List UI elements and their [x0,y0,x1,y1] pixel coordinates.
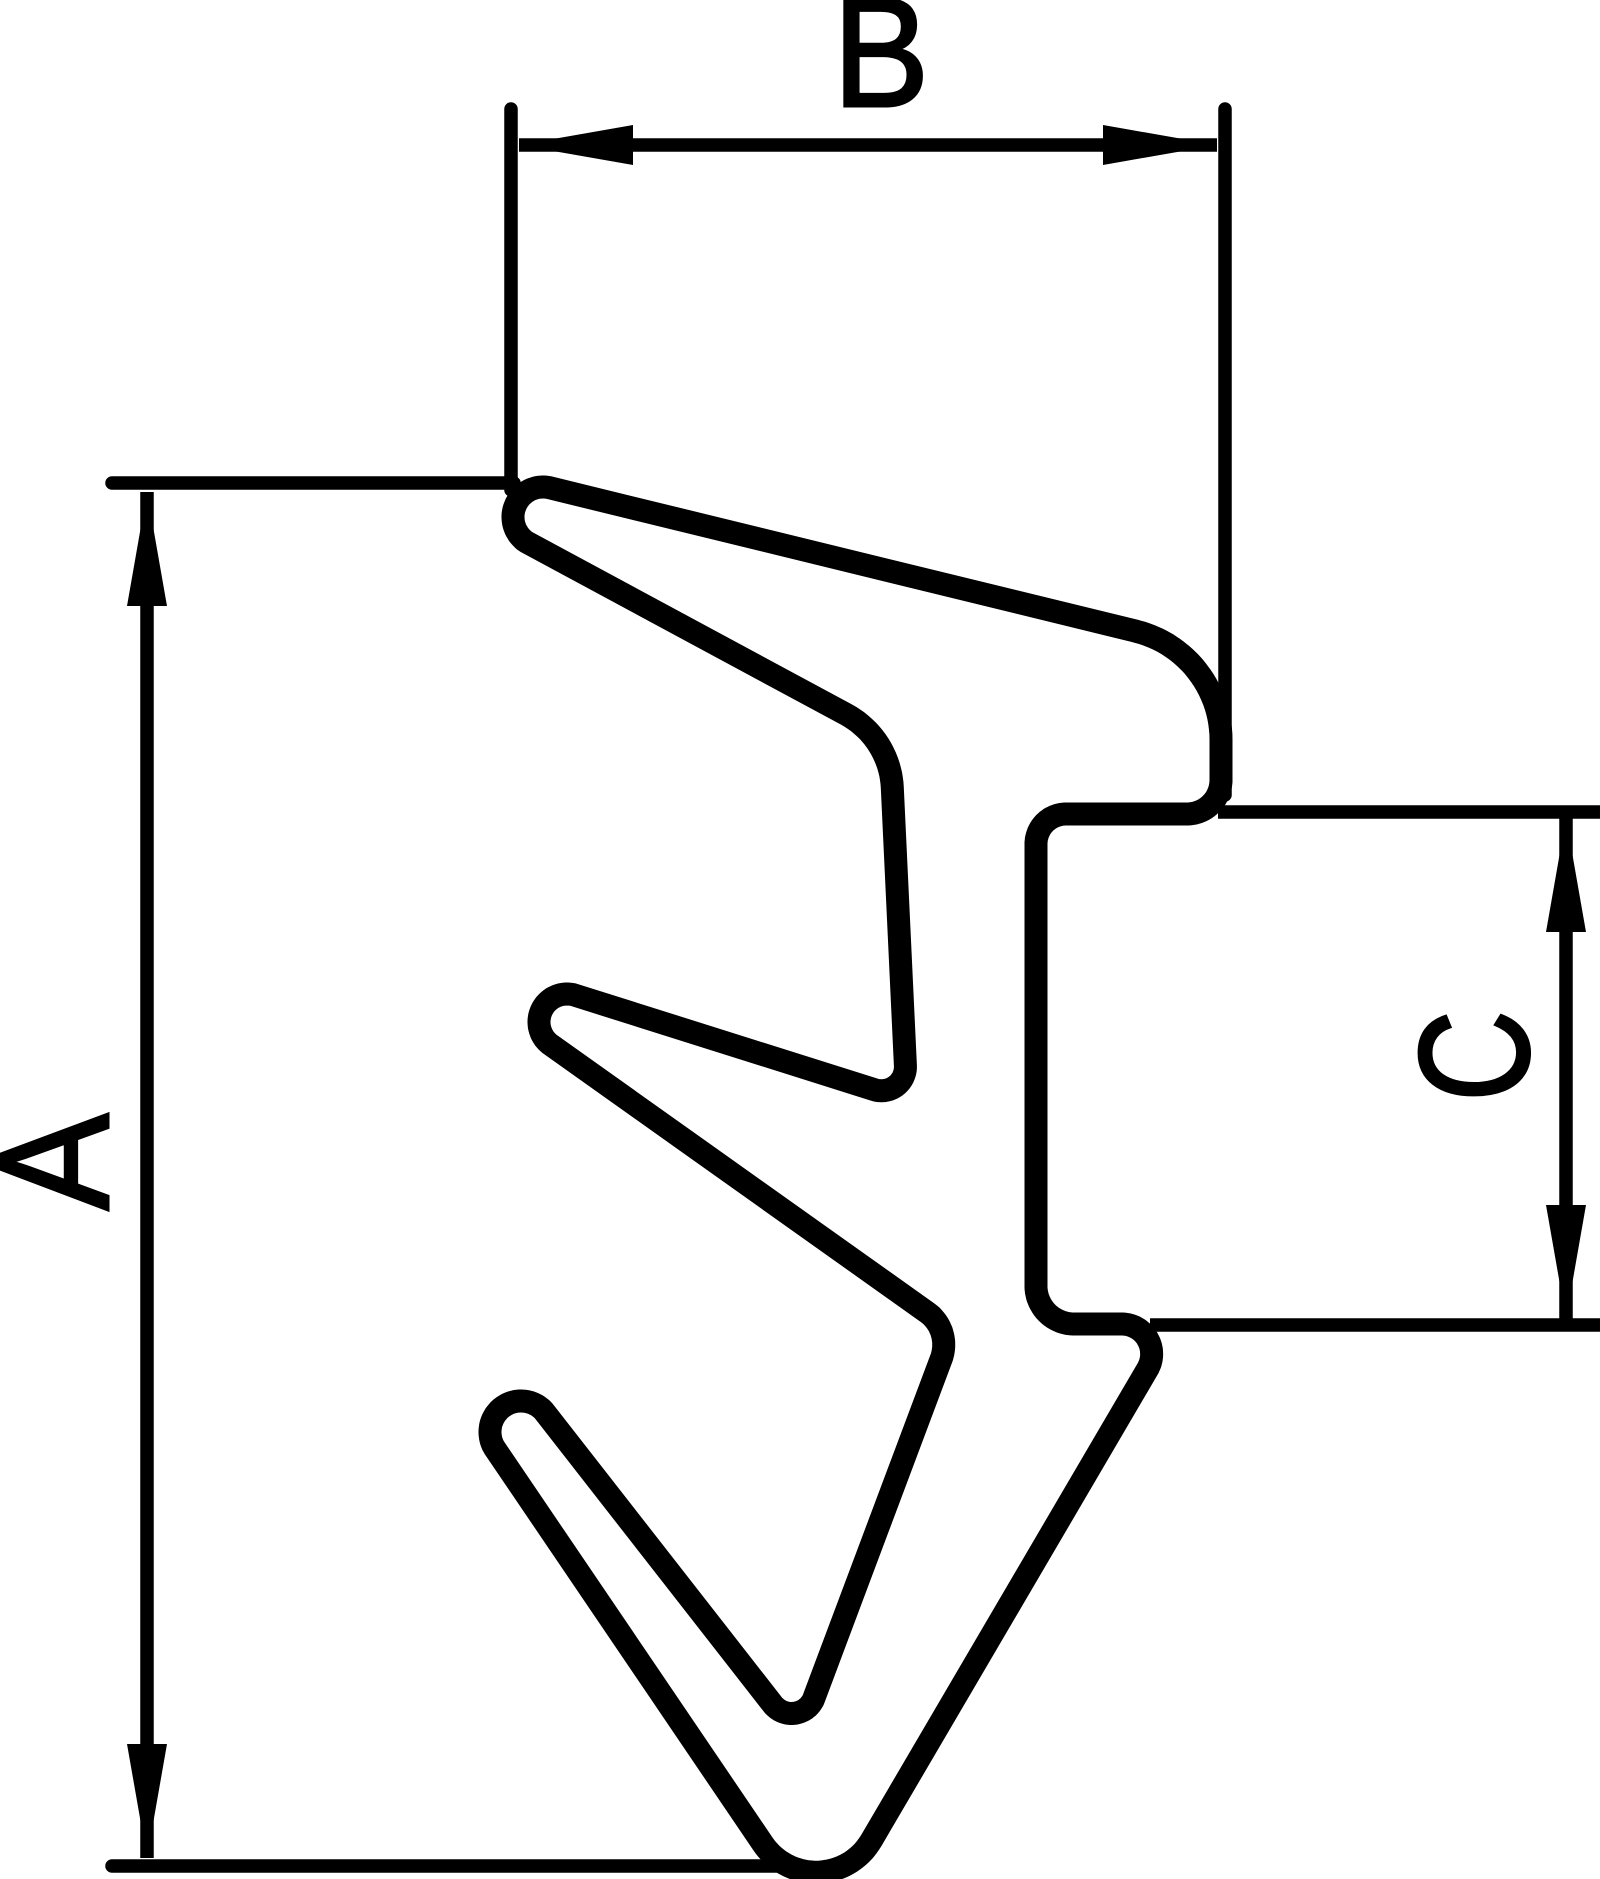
svg-text:B: B [833,0,929,139]
svg-text:A: A [0,1113,141,1210]
svg-text:C: C [1387,1010,1562,1101]
